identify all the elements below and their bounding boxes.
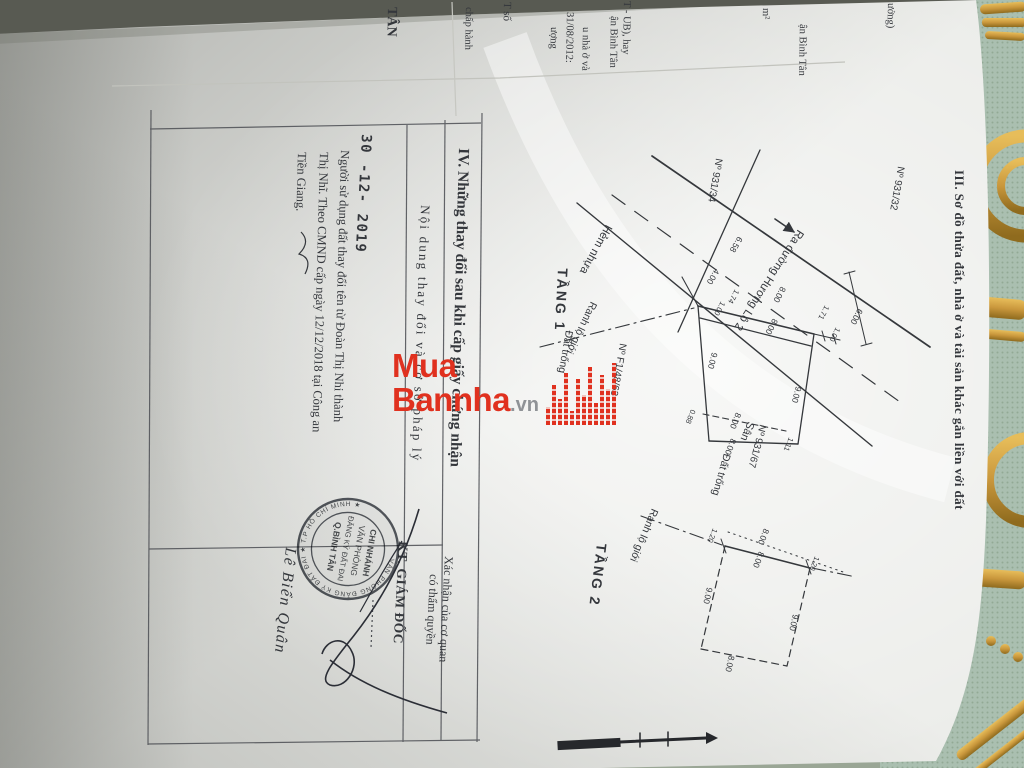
fragment: ưởng) [885,3,896,29]
logo-bars-icon [546,363,616,425]
fragment: 31/08/2012: [563,12,575,63]
fragment: ận Bình Tân [607,16,619,69]
logo-suffix: .vn [510,394,539,416]
fragment: T - UB), hay [620,1,632,55]
document-photo: ưởng) ận Bình Tân m² T - UB), hay ận Bìn… [0,0,1024,768]
fragment: ận Bình Tân [796,24,808,77]
fragment: u nhà ở và [579,27,591,71]
watermark-logo: Mua Bannha.vn [392,349,618,433]
entry-text-line: Tiền Giang. [293,152,309,212]
fragment: chấp hành [462,7,474,51]
fragment: ượng [548,27,559,50]
section3-title: III. Sơ đồ thửa đất, nhà ở và tài sản kh… [952,170,967,510]
fragment: m² [760,8,771,20]
fragment: T số [501,2,513,22]
fragment: TÂN [383,7,401,37]
tang1-label: TẦNG 1 [552,268,571,332]
